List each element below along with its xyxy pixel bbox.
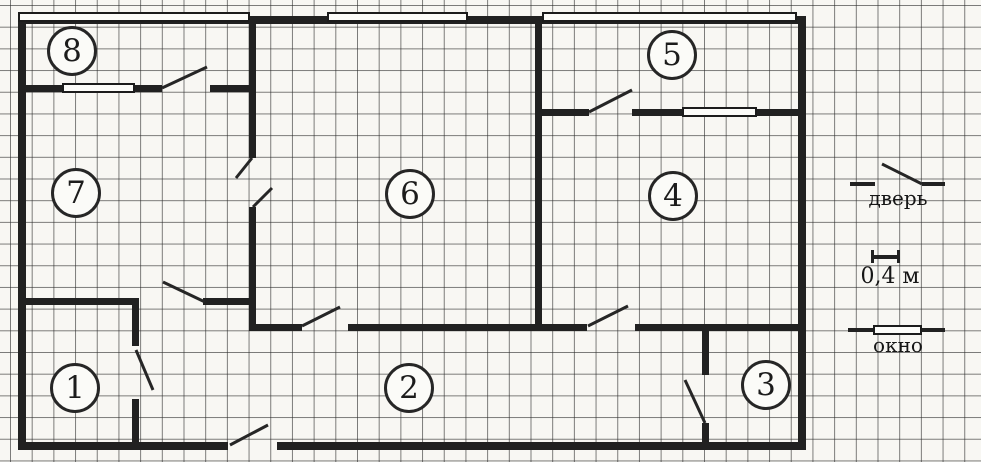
- wall-room1-right-b: [132, 399, 139, 446]
- door-leaf-room7-east-icon: [236, 158, 252, 178]
- wall-mid-vertical-a: [249, 20, 256, 158]
- wall-room5-c: [757, 109, 798, 116]
- wall-corridor-c: [635, 324, 802, 331]
- door-leaf-entrance-icon: [230, 425, 268, 445]
- wall-room6-right: [535, 20, 542, 328]
- wall-exterior-bottom-b: [277, 442, 806, 450]
- legend-scale-tick-left: [871, 250, 874, 263]
- wall-exterior-bottom-a: [18, 442, 228, 450]
- room-label-8: 8: [47, 26, 97, 76]
- door-leaf-room7-south-icon: [163, 282, 205, 302]
- wall-room3-left-a: [702, 327, 709, 375]
- window-room5-icon: [682, 107, 757, 117]
- door-leaf-room8-icon: [162, 67, 207, 88]
- wall-room5-b: [632, 109, 682, 116]
- legend-door-leaf-icon: [882, 164, 922, 184]
- window-room8-icon: [62, 83, 135, 93]
- wall-room5-a: [540, 109, 589, 116]
- door-leaf-room4-icon: [588, 306, 628, 326]
- room-label-6: 6: [385, 169, 435, 219]
- wall-room7-bottom-b: [203, 298, 256, 305]
- legend-window-wall-left: [848, 328, 873, 332]
- legend-scale-label: 0,4 м: [854, 264, 926, 289]
- window-top-left-icon: [18, 12, 250, 22]
- door-leaf-room6-west-icon: [253, 188, 272, 207]
- legend-window-label: окно: [866, 333, 930, 357]
- wall-room3-left-b: [702, 423, 709, 446]
- window-top-right-icon: [542, 12, 797, 22]
- room-label-5: 5: [647, 30, 697, 80]
- wall-mid-vertical-b: [249, 207, 256, 329]
- door-leaf-room6-south-icon: [302, 307, 340, 326]
- wall-corridor-a: [249, 324, 302, 331]
- legend-scale-bar: [872, 255, 899, 259]
- wall-exterior-left: [18, 16, 26, 450]
- wall-room1-right-a: [132, 301, 139, 346]
- room-label-3: 3: [741, 360, 791, 410]
- legend-window-wall-right: [922, 328, 945, 332]
- room-label-2: 2: [384, 363, 434, 413]
- room-label-4: 4: [648, 171, 698, 221]
- door-leaves-layer: [0, 0, 981, 462]
- legend-door-label: дверь: [858, 186, 938, 210]
- door-leaf-room1-icon: [136, 350, 153, 390]
- wall-room7-bottom-a: [22, 298, 139, 305]
- room-label-7: 7: [51, 168, 101, 218]
- wall-room8-a: [22, 85, 62, 92]
- room-label-1: 1: [50, 363, 100, 413]
- door-leaf-room5-icon: [589, 90, 632, 112]
- door-leaf-room3-icon: [685, 380, 705, 423]
- floor-plan: 8 7 1 6 2 5 4 3 дверь 0,4 м окно: [0, 0, 981, 462]
- legend-scale-tick-right: [897, 250, 900, 263]
- wall-exterior-right: [798, 16, 806, 450]
- wall-corridor-b: [348, 324, 587, 331]
- window-top-middle-icon: [327, 12, 468, 22]
- wall-room8-b: [135, 85, 162, 92]
